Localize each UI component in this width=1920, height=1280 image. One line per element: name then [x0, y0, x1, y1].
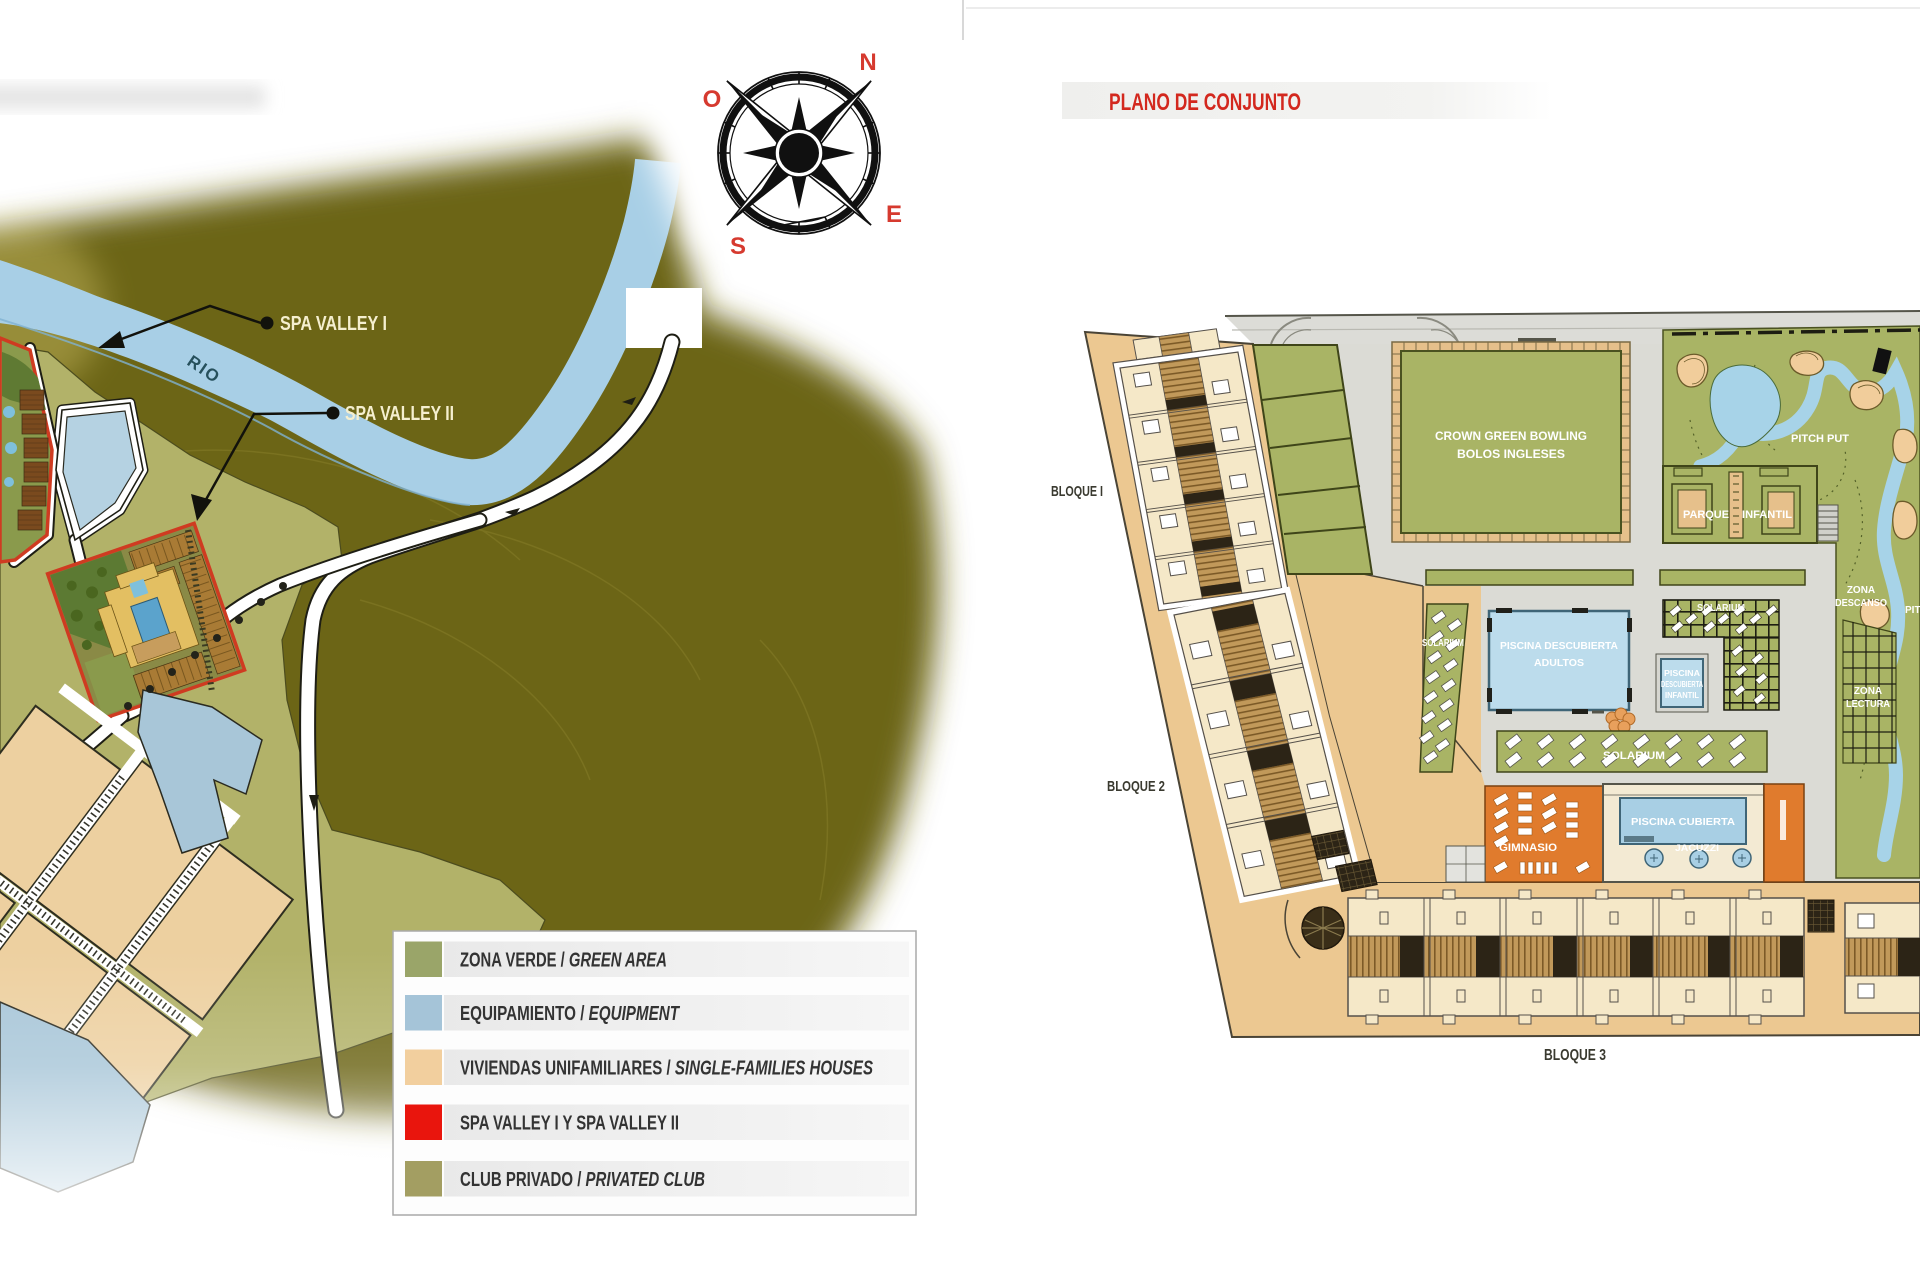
svg-text:DESCUBIERTA: DESCUBIERTA — [1661, 680, 1703, 689]
svg-text:ZONA: ZONA — [1847, 585, 1875, 596]
svg-text:SOLARIUM: SOLARIUM — [1603, 750, 1665, 762]
svg-text:INFANTIL: INFANTIL — [1742, 509, 1792, 521]
svg-text:LECTURA: LECTURA — [1846, 699, 1890, 710]
svg-text:GIMNASIO: GIMNASIO — [1499, 842, 1557, 854]
svg-text:BLOQUE 2: BLOQUE 2 — [1107, 778, 1165, 795]
svg-text:PLANO DE CONJUNTO: PLANO DE CONJUNTO — [1109, 89, 1301, 116]
svg-text:E: E — [886, 201, 902, 228]
svg-text:VIVIENDAS UNIFAMILIARES / SING: VIVIENDAS UNIFAMILIARES / SINGLE-FAMILIE… — [460, 1058, 873, 1080]
svg-text:SPA VALLEY I Y SPA VALLEY II: SPA VALLEY I Y SPA VALLEY II — [460, 1113, 679, 1135]
svg-text:EQUIPAMIENTO / EQUIPMENT: EQUIPAMIENTO / EQUIPMENT — [460, 1003, 680, 1025]
svg-text:JACUZZI: JACUZZI — [1675, 843, 1719, 854]
svg-text:PISCINA CUBIERTA: PISCINA CUBIERTA — [1631, 816, 1735, 828]
svg-text:ZONA VERDE / GREEN AREA: ZONA VERDE / GREEN AREA — [460, 950, 667, 972]
svg-text:BOLOS INGLESES: BOLOS INGLESES — [1457, 447, 1565, 461]
svg-text:SOLARIUM: SOLARIUM — [1697, 603, 1745, 614]
svg-text:PISCINA DESCUBIERTA: PISCINA DESCUBIERTA — [1500, 640, 1618, 652]
svg-text:BLOQUE 3: BLOQUE 3 — [1544, 1047, 1606, 1064]
svg-text:SPA VALLEY II: SPA VALLEY II — [345, 403, 454, 425]
svg-text:INFANTIL: INFANTIL — [1665, 691, 1699, 700]
svg-text:SPA VALLEY I: SPA VALLEY I — [280, 313, 387, 335]
svg-text:BLOQUE I: BLOQUE I — [1051, 483, 1103, 500]
svg-text:SOLARIUM: SOLARIUM — [1422, 638, 1464, 649]
svg-text:DESCANSO: DESCANSO — [1835, 598, 1887, 609]
svg-text:ADULTOS: ADULTOS — [1534, 657, 1584, 669]
svg-text:O: O — [703, 86, 722, 113]
svg-text:PITCH: PITCH — [1905, 605, 1920, 616]
svg-text:CROWN GREEN BOWLING: CROWN GREEN BOWLING — [1435, 429, 1587, 443]
svg-text:PITCH PUT: PITCH PUT — [1791, 433, 1849, 445]
svg-text:CLUB PRIVADO / PRIVATED CLUB: CLUB PRIVADO / PRIVATED CLUB — [460, 1169, 705, 1191]
svg-text:PARQUE: PARQUE — [1683, 509, 1729, 521]
svg-text:N: N — [859, 49, 876, 76]
svg-text:PISCINA: PISCINA — [1664, 669, 1700, 678]
svg-text:ZONA: ZONA — [1854, 686, 1882, 697]
svg-text:S: S — [730, 233, 746, 260]
